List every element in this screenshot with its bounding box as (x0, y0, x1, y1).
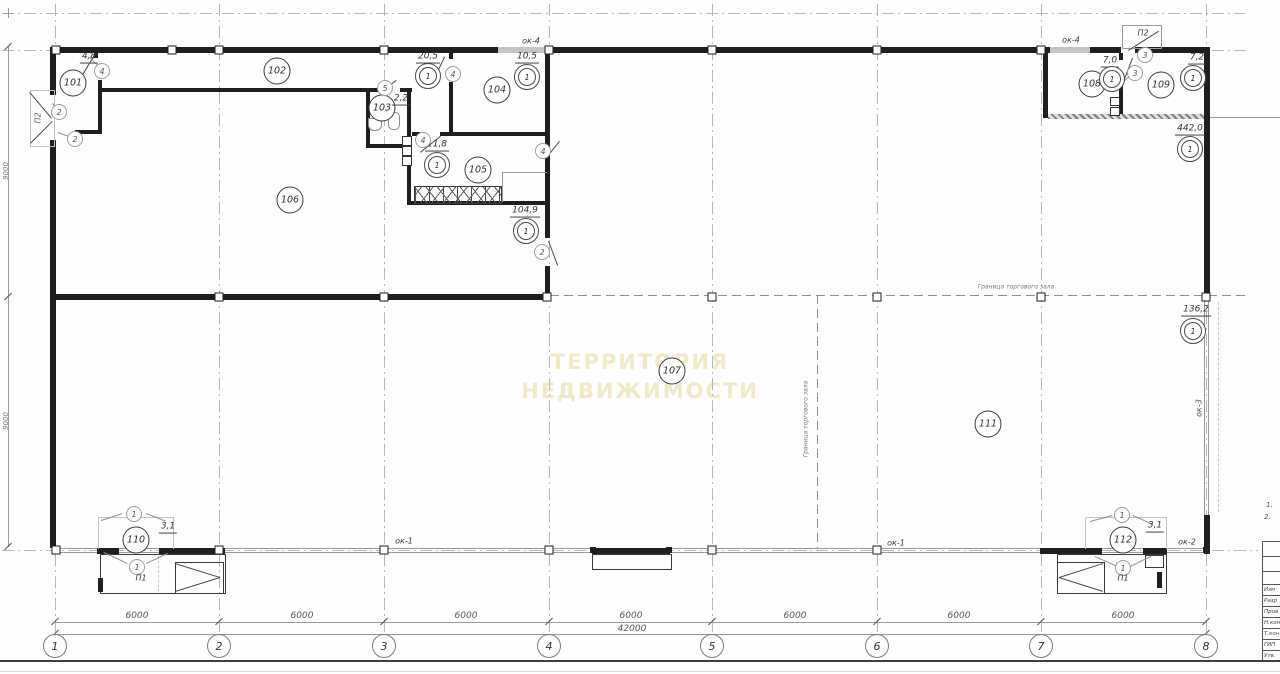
column (380, 546, 389, 555)
area-ref-102: 1 (415, 63, 441, 89)
title-block-line (1262, 639, 1280, 640)
axis-bubble-6: 6 (865, 634, 889, 658)
door-mark: 5 (377, 80, 393, 96)
column (52, 46, 61, 55)
column (1203, 547, 1209, 553)
dim-label-total: 42000 (618, 624, 647, 634)
dim-label-bay: 6000 (126, 611, 149, 621)
area-ref-value: 1 (1184, 69, 1202, 87)
dim-label-depth: 9000 (2, 162, 10, 180)
window-label-ok1: ок-1 (395, 537, 413, 546)
area-ref-value: 1 (428, 156, 446, 174)
title-block-row-izm: Изм (1264, 587, 1275, 593)
wall-ext-line (1210, 117, 1280, 118)
axis-bubble-5: 5 (700, 634, 724, 658)
dim-label-bay: 6000 (455, 611, 478, 621)
ref-line-top (2, 13, 1245, 14)
window-ok4 (1050, 47, 1090, 53)
title-block-line (1262, 541, 1280, 542)
column (873, 546, 882, 555)
note-2: 2. (1264, 513, 1271, 521)
door-mark: 1 (126, 506, 142, 522)
door-mark: 3 (1127, 65, 1143, 81)
area-label-109: 7,2 (1188, 54, 1206, 65)
partition-108-109 (1048, 114, 1204, 119)
wall-108-left (1043, 53, 1048, 118)
vent-box (402, 136, 412, 146)
title-block-line (1262, 628, 1280, 629)
dim-label-depth: 9000 (2, 412, 10, 430)
title-block-row-tkontr: Т.кон (1264, 631, 1279, 637)
wall-104-bottom (440, 132, 547, 136)
room-tag-107: 107 (659, 358, 686, 385)
room-tag-104: 104 (484, 77, 511, 104)
title-block-line (1262, 606, 1280, 607)
dim-label-bay: 6000 (620, 611, 643, 621)
area-label-107: 442,0 (1175, 125, 1205, 136)
area-ref-value: 1 (1184, 322, 1202, 340)
floor-plan-canvas: ТЕРРИТОРИЯ НЕДВИЖИМОСТИ (0, 0, 1280, 674)
column (1202, 293, 1211, 302)
area-label-102: 20,5 (416, 53, 440, 64)
room-tag-111: 111 (975, 411, 1002, 438)
door-mark: 2 (67, 131, 83, 147)
column (380, 293, 389, 302)
vent-box (402, 156, 412, 166)
room-tag-112: 112 (1110, 527, 1137, 554)
area-ref-value: 1 (518, 68, 536, 86)
window-label-ok4: ок-4 (522, 37, 540, 46)
title-block-line (1262, 571, 1280, 572)
column (708, 46, 717, 55)
title-block-row-nkontr: Н.кон (1264, 620, 1280, 626)
dim-line-total (55, 634, 1206, 635)
room-tag-101: 101 (60, 70, 87, 97)
title-block-border (1262, 541, 1263, 661)
stair-hatch-105 (414, 186, 502, 204)
door-mark: 4 (535, 143, 551, 159)
door-mark: 4 (94, 63, 110, 79)
dim-label-bay: 6000 (948, 611, 971, 621)
door-mark: 2 (534, 244, 550, 260)
door-tick (98, 578, 103, 592)
axis-line-7 (1041, 4, 1042, 638)
column (380, 46, 389, 55)
area-ref-104: 1 (514, 64, 540, 90)
column (708, 546, 717, 555)
title-block-line (1262, 556, 1280, 557)
column (545, 546, 554, 555)
wall-middle (50, 294, 550, 300)
title-block-row-gip: ГИП (1264, 642, 1275, 648)
column (543, 293, 552, 302)
vestibule-label-p2: П2 (1137, 29, 1148, 38)
title-block-row-prov: Пров (1264, 609, 1278, 615)
title-block-row-utv: Утв. (1264, 653, 1276, 659)
column (545, 46, 554, 55)
column (52, 546, 61, 555)
area-label-103: 2,2 (392, 95, 410, 106)
area-ref-value: 1 (1103, 70, 1121, 88)
porch-label-p1: П1 (135, 574, 146, 583)
area-label-111: 136,2 (1181, 306, 1211, 317)
dim-line-bays (55, 622, 1206, 623)
axis-line-6 (877, 4, 878, 638)
note-1: 1. (1266, 501, 1273, 509)
window-label-ok2: ок-2 (1178, 538, 1196, 547)
column (708, 293, 717, 302)
room-tag-106: 106 (277, 187, 304, 214)
area-ref-109: 1 (1180, 65, 1206, 91)
watermark-line1: ТЕРРИТОРИЯ (521, 348, 759, 377)
axis-bubble-1: 1 (43, 634, 67, 658)
door-mark: 4 (415, 132, 431, 148)
title-block-line (1262, 650, 1280, 651)
entrance-step (592, 554, 672, 570)
canopy-line (1218, 302, 1219, 512)
area-label-110: 3,1 (159, 523, 177, 534)
porch-label-p1: П1 (1117, 574, 1128, 583)
ref-cross (8, 8, 9, 18)
area-ref-105: 1 (424, 152, 450, 178)
watermark-line2: НЕДВИЖИМОСТИ (521, 377, 759, 406)
wall-right-top (1204, 47, 1210, 300)
area-label-106: 104,9 (510, 207, 540, 218)
title-block-line (1262, 595, 1280, 596)
axis-bubble-4: 4 (537, 634, 561, 658)
dim-label-bay: 6000 (1112, 611, 1135, 621)
window-label-ok3: ок-3 (1195, 399, 1204, 417)
vent-box (402, 146, 412, 156)
window-label-ok4: ок-4 (1062, 36, 1080, 45)
area-ref-107: 1 (1177, 136, 1203, 162)
sales-area-boundary-v (817, 295, 818, 548)
dim-label-bay: 6000 (784, 611, 807, 621)
window-band-right (1208, 300, 1209, 548)
area-ref-value: 1 (419, 67, 437, 85)
title-block-row-razrab: Разр (1264, 598, 1277, 604)
window-label-ok1: ок-1 (887, 539, 905, 548)
axis-bubble-3: 3 (372, 634, 396, 658)
room-tag-105: 105 (465, 157, 492, 184)
axis-line-2 (219, 4, 220, 638)
sales-area-boundary-h (550, 295, 1245, 296)
area-ref-111: 1 (1180, 318, 1206, 344)
wall-104-left (449, 82, 453, 136)
frame-bottom (0, 660, 1280, 662)
axis-bubble-7: 7 (1029, 634, 1053, 658)
wall-corridor (102, 88, 366, 92)
room-tag-110: 110 (123, 527, 150, 554)
watermark: ТЕРРИТОРИЯ НЕДВИЖИМОСТИ (521, 348, 759, 406)
boundary-label: Граница торгового зала (978, 284, 1054, 291)
area-ref-value: 1 (517, 222, 535, 240)
axis-bubble-2: 2 (207, 634, 231, 658)
frame-edge (0, 671, 1280, 672)
step-jamb (590, 547, 596, 553)
boundary-label: Граница торгового зала (803, 381, 810, 457)
room-tag-109: 109 (1148, 72, 1175, 99)
door-mark: 2 (51, 104, 67, 120)
column (215, 293, 224, 302)
door-jamb (1119, 53, 1123, 60)
step-line (502, 172, 547, 173)
area-ref-value: 1 (1181, 140, 1199, 158)
room-tag-102: 102 (264, 58, 291, 85)
door-jamb (449, 53, 453, 59)
axis-bubble-8: 8 (1194, 634, 1218, 658)
area-label-101: 4,8 (80, 53, 98, 64)
area-ref-106: 1 (513, 218, 539, 244)
column (873, 293, 882, 302)
area-label-104: 10,5 (515, 53, 539, 64)
door-mark: 1 (1114, 507, 1130, 523)
step-jamb (666, 547, 672, 553)
door-tick (1157, 572, 1162, 588)
fixture-box (1110, 97, 1120, 106)
area-label-112: 3,1 (1146, 522, 1164, 533)
step-line (502, 172, 503, 202)
vestibule-label-p2: П2 (34, 112, 43, 123)
column (1037, 293, 1046, 302)
column (873, 46, 882, 55)
door-mark: 4 (445, 66, 461, 82)
column (1037, 46, 1046, 55)
axis-line-5 (712, 4, 713, 638)
column (215, 46, 224, 55)
area-ref-108: 1 (1099, 66, 1125, 92)
door-mark: 3 (1137, 47, 1153, 63)
dim-label-bay: 6000 (291, 611, 314, 621)
vestibule-110-divider (158, 556, 159, 592)
title-block-line (1262, 584, 1280, 585)
title-block-line (1262, 617, 1280, 618)
column (168, 46, 177, 55)
fixture-box (1110, 107, 1120, 116)
